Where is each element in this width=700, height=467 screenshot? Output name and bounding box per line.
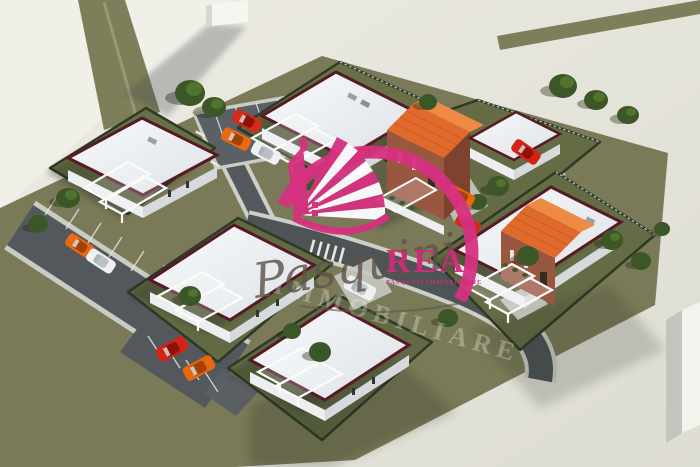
white-cube-building	[666, 302, 700, 443]
render-canvas: IMMOBILIARE Pasquini REA PASQUINI IMMOBI…	[0, 0, 700, 467]
watermark-tagline-text: PASQUINI IMMOBILIARE	[386, 279, 482, 286]
watermark-caps-text: REA	[386, 243, 467, 280]
